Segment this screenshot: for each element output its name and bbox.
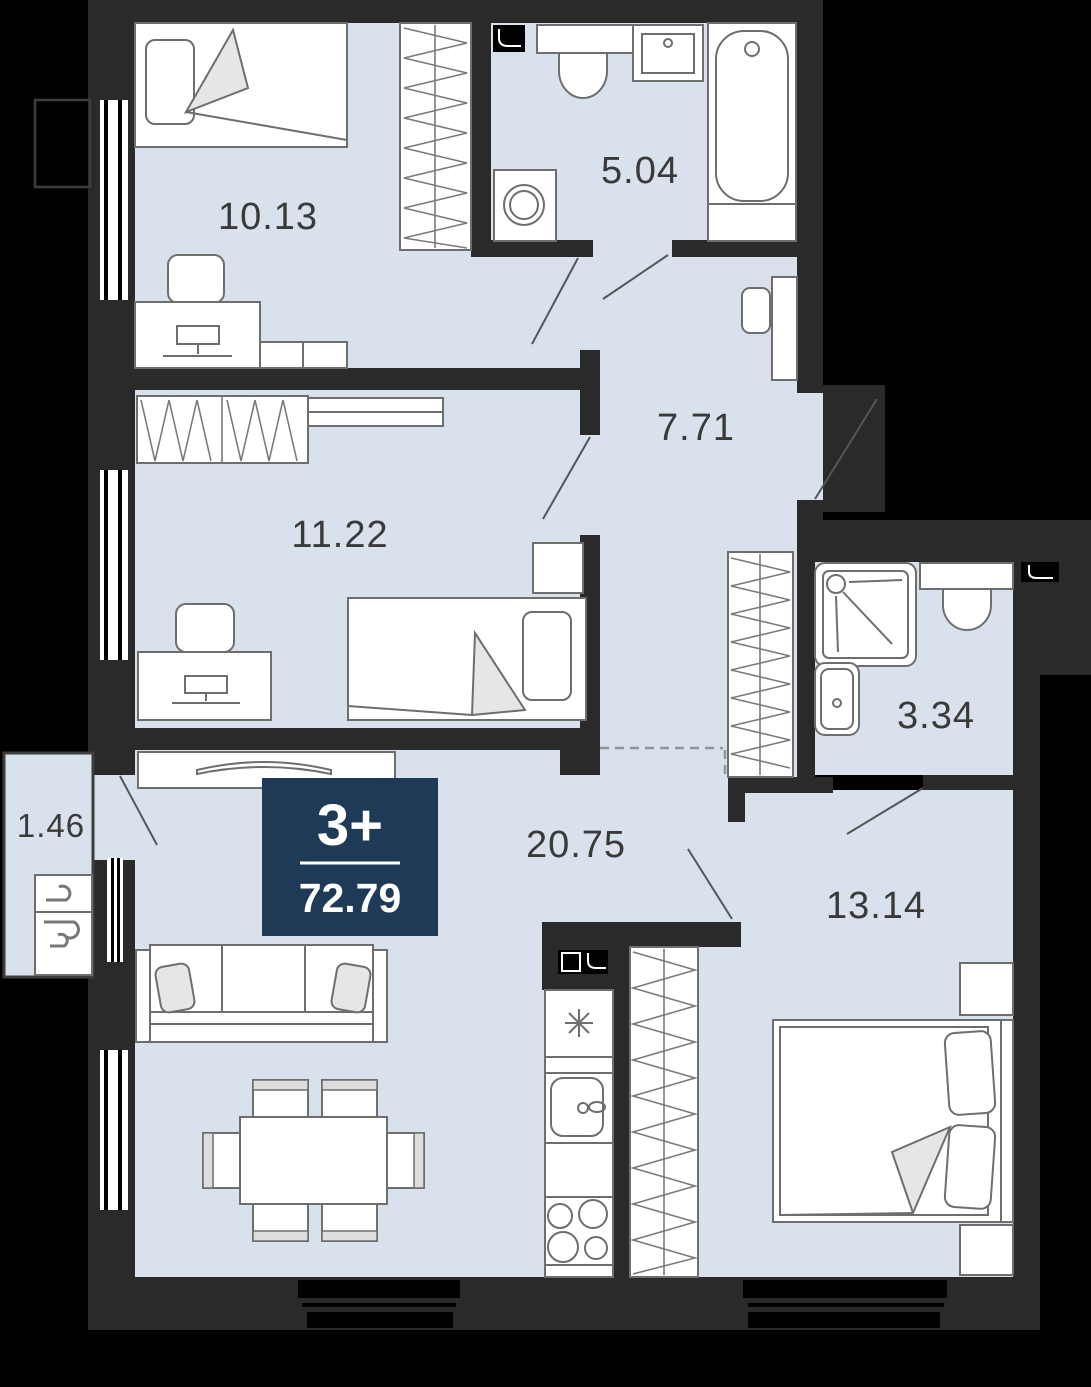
sink-icon xyxy=(815,663,859,735)
nightstand-icon xyxy=(960,1225,1013,1275)
window-icon xyxy=(100,1050,128,1210)
fridge-snowflake-icon xyxy=(545,990,613,1057)
bottom-window-living-icon xyxy=(298,1280,460,1328)
badge-total-area: 72.79 xyxy=(299,875,402,921)
pillow-icon xyxy=(154,962,195,1013)
pillow-icon xyxy=(330,962,371,1013)
shelf-icon xyxy=(308,398,443,426)
single-bed-icon xyxy=(348,598,586,720)
hall-closet-icon xyxy=(728,552,793,777)
tall-wardrobe-icon xyxy=(630,947,698,1277)
dresser-icon xyxy=(260,342,347,368)
single-bed-icon xyxy=(135,23,347,147)
sofa-icon xyxy=(136,945,387,1042)
entry-door-opening xyxy=(797,393,823,500)
washing-machine-icon xyxy=(494,170,556,241)
nightstand-icon xyxy=(533,543,583,593)
pillow-icon xyxy=(944,1030,996,1115)
wardrobe-icon xyxy=(400,23,471,250)
room-area-label: 10.13 xyxy=(218,196,318,238)
nightstand-icon xyxy=(960,963,1013,1015)
exterior-basket-outline xyxy=(35,100,90,187)
room-area-label: 13.14 xyxy=(826,885,926,927)
pillow-icon xyxy=(944,1124,996,1209)
area-badge: 3+ 72.79 xyxy=(262,778,438,936)
room-area-label: 20.75 xyxy=(526,824,626,866)
badge-rooms-count: 3+ xyxy=(317,793,383,858)
vent-shaft-icon xyxy=(558,950,608,974)
room-area-label: 1.46 xyxy=(17,807,85,844)
room-area-label: 3.34 xyxy=(897,695,975,737)
air-conditioner-unit xyxy=(35,875,92,975)
window-icon xyxy=(100,100,128,300)
kitchen-block xyxy=(545,950,613,1277)
kitchen-counter xyxy=(545,1057,613,1073)
room-area-label: 7.71 xyxy=(657,407,735,449)
room-area-label: 11.22 xyxy=(291,514,388,556)
floor-plan-svg: 10.13 5.04 xyxy=(0,0,1091,1387)
double-bed-icon xyxy=(773,1020,1013,1222)
bathtub-icon xyxy=(708,23,796,241)
bottom-window-master-icon xyxy=(743,1280,947,1328)
wardrobe-icon xyxy=(137,396,308,463)
balcony-window-icon xyxy=(107,858,123,962)
kitchen-counter xyxy=(545,1265,613,1277)
vent-shaft-icon xyxy=(493,25,525,52)
sink-icon xyxy=(633,25,703,81)
balcony-door-opening xyxy=(88,775,135,860)
window-icon xyxy=(100,470,128,660)
kitchen-counter xyxy=(545,1143,613,1197)
stove-burners-icon xyxy=(545,1197,613,1265)
kitchen-sink-icon xyxy=(545,1073,613,1143)
vent-shaft-icon xyxy=(1021,562,1059,582)
floor-plan-canvas: 10.13 5.04 xyxy=(0,0,1091,1387)
entry-recess xyxy=(823,385,885,512)
room-area-label: 5.04 xyxy=(601,150,679,192)
shower-icon xyxy=(815,563,916,666)
